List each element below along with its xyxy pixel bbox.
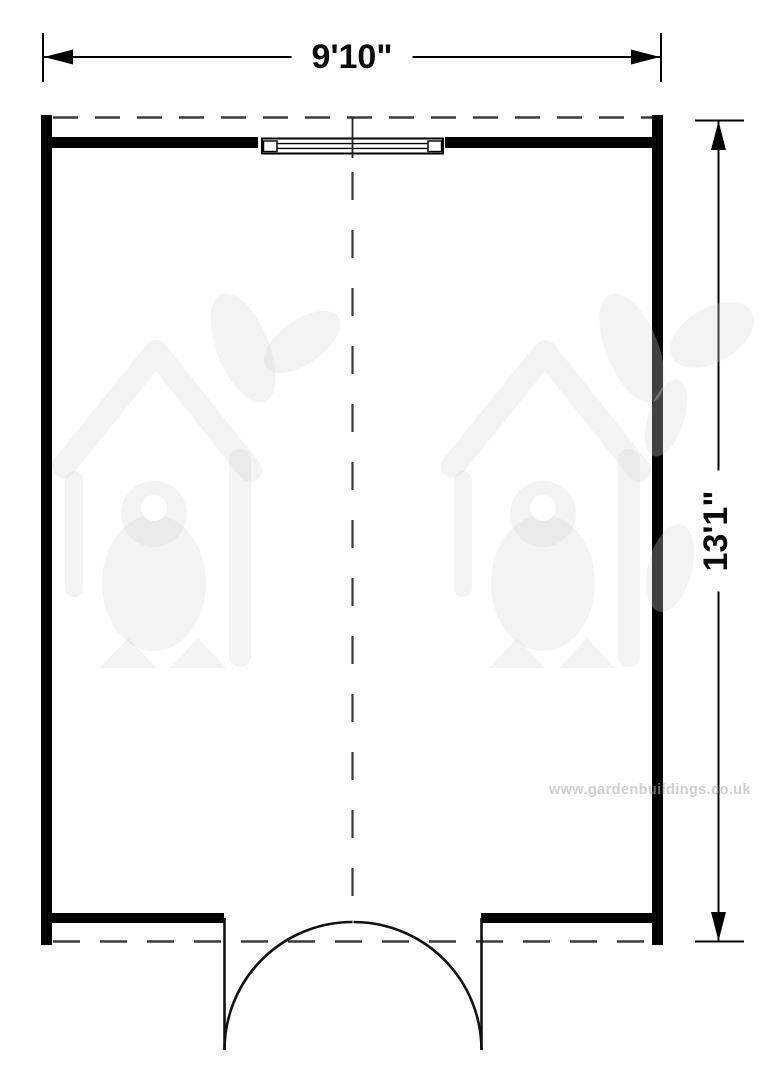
wall-top-left-segment <box>52 137 258 148</box>
arrowhead-down-icon <box>711 912 726 941</box>
wall-right <box>652 115 663 945</box>
door-swing-arc-right <box>354 922 482 1050</box>
width-dimension-label: 9'10" <box>292 36 413 78</box>
arrowhead-left-icon <box>44 50 73 65</box>
window-jamb-left <box>264 141 278 152</box>
wall-top-right-segment <box>445 137 652 148</box>
arrowhead-right-icon <box>631 50 660 65</box>
wall-bottom-right-segment <box>481 913 652 923</box>
floor-plan-drawing <box>0 0 764 1080</box>
window-jamb-right <box>428 141 442 152</box>
wall-left <box>41 115 52 945</box>
double-door-symbol <box>225 918 482 1050</box>
depth-dimension-label: 13'1" <box>695 471 737 592</box>
floor-plan-canvas: 9'10" 13'1" <box>0 0 764 1080</box>
wall-bottom-left-segment <box>52 913 224 923</box>
arrowhead-up-icon <box>711 121 726 150</box>
